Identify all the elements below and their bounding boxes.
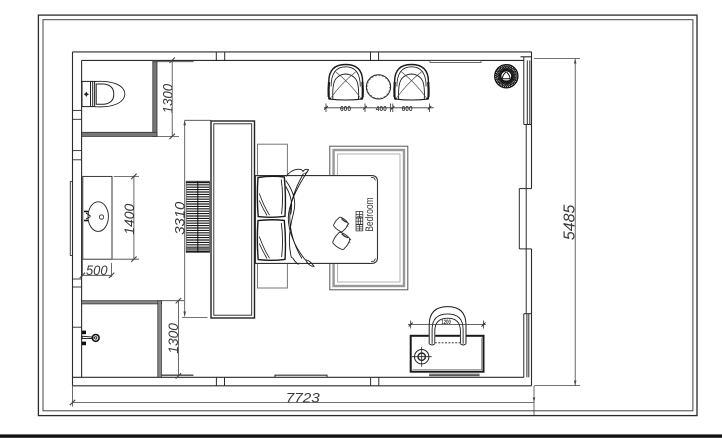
svg-text:600: 600: [340, 104, 351, 113]
svg-text:600: 600: [402, 104, 413, 113]
svg-text:1200: 1200: [441, 319, 451, 326]
svg-text:1300: 1300: [160, 84, 176, 114]
svg-text:5485: 5485: [561, 204, 578, 240]
svg-text:500: 500: [86, 262, 108, 278]
svg-text:3310: 3310: [171, 202, 187, 235]
svg-text:1400: 1400: [121, 204, 137, 235]
svg-text:7723: 7723: [286, 390, 321, 405]
svg-text:Bedroom: Bedroom: [364, 197, 376, 231]
svg-text:400: 400: [376, 104, 387, 113]
svg-text:1300: 1300: [165, 323, 181, 354]
